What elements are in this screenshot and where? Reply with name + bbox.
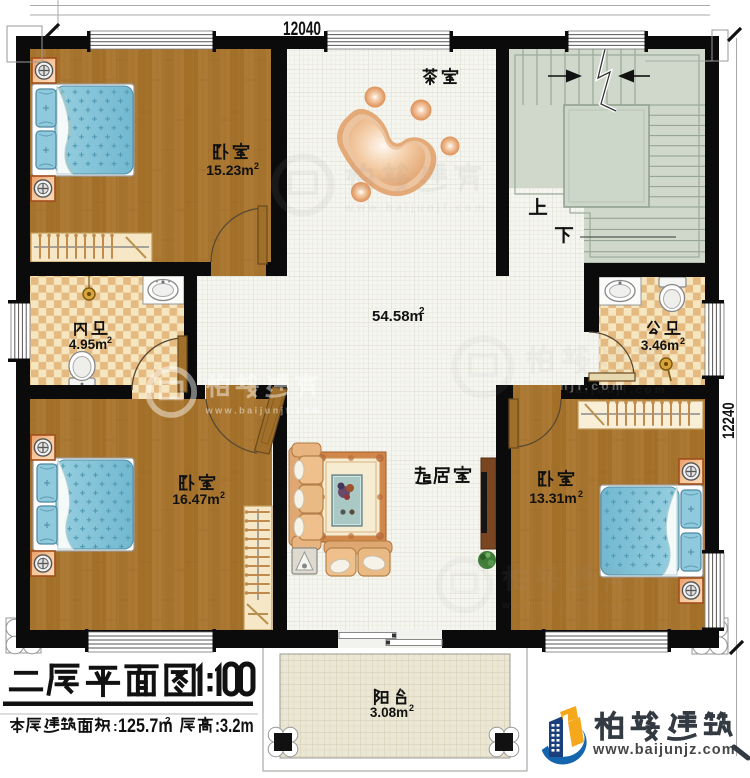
svg-text:15.23m: 15.23m bbox=[206, 162, 253, 178]
svg-text:12040: 12040 bbox=[283, 18, 321, 40]
svg-text:4.95m: 4.95m bbox=[69, 337, 107, 352]
svg-text:2: 2 bbox=[680, 336, 685, 346]
svg-text:3.08m: 3.08m bbox=[370, 705, 408, 720]
svg-text:2: 2 bbox=[409, 703, 414, 713]
svg-text:2: 2 bbox=[419, 306, 425, 317]
svg-text:16.47m: 16.47m bbox=[172, 491, 219, 507]
svg-text:w w w . b a i j u n j f . c o: w w w . b a i j u n j f . c o m bbox=[501, 600, 627, 611]
svg-text:12240: 12240 bbox=[720, 402, 739, 439]
svg-text:2: 2 bbox=[578, 489, 583, 499]
svg-text:13.31m: 13.31m bbox=[529, 490, 576, 506]
svg-text:2: 2 bbox=[220, 490, 225, 500]
svg-text:2: 2 bbox=[165, 716, 171, 727]
svg-text:2: 2 bbox=[254, 161, 259, 171]
svg-text:54.58m: 54.58m bbox=[372, 308, 423, 325]
svg-text::3.2m: :3.2m bbox=[215, 715, 254, 736]
svg-text::: : bbox=[113, 718, 118, 734]
svg-text:n j f . c o m: n j f . c o m bbox=[560, 379, 623, 393]
svg-text:www.baijunjz.com: www.baijunjz.com bbox=[592, 742, 736, 758]
svg-text:2: 2 bbox=[107, 335, 112, 345]
svg-text:w w w . b a i j u n j f . c o: w w w . b a i j u n j f . c o m bbox=[205, 405, 320, 415]
svg-text:w w w . b a i j u n j f . c o: w w w . b a i j u n j f . c o m bbox=[344, 202, 485, 214]
